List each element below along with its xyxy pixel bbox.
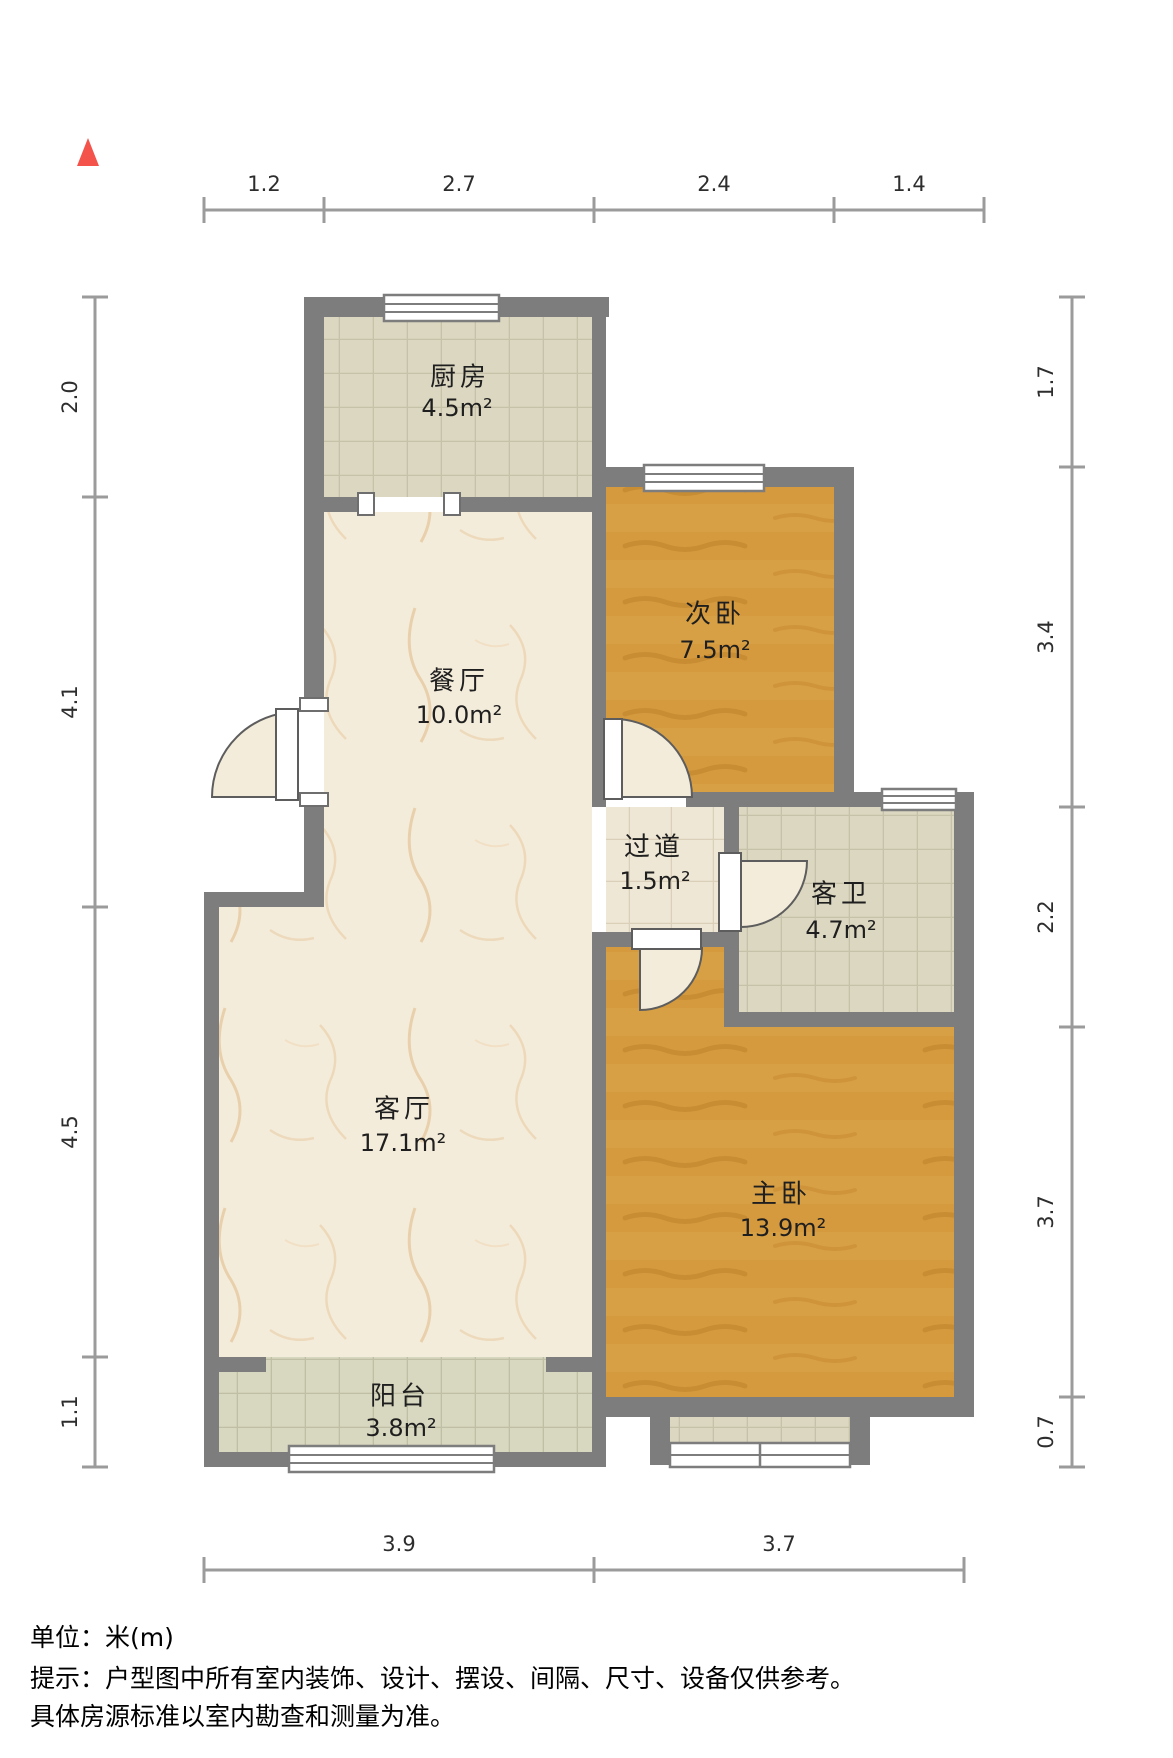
- footer-note-line1: 提示：户型图中所有室内装饰、设计、摆设、间隔、尺寸、设备仅供参考。: [30, 1659, 855, 1695]
- kitchen-area: 4.5m²: [421, 394, 492, 422]
- dining-room-area: 10.0m²: [416, 701, 502, 729]
- kitchen-opening-jamb-left: [358, 493, 374, 515]
- kitchen-window: [384, 295, 499, 321]
- wall-hallway-bottom-right: [699, 932, 724, 947]
- wall-balcony-divider-left: [219, 1357, 266, 1372]
- dim-left-1: 2.0: [58, 380, 82, 413]
- wall-guest-bathroom-west-upper: [724, 807, 739, 857]
- balcony-window: [289, 1446, 494, 1472]
- dim-top-2: 2.7: [442, 172, 475, 196]
- living-room-label: 客厅: [374, 1089, 434, 1126]
- dim-top-1: 1.2: [247, 172, 280, 196]
- dim-left-2: 4.1: [58, 685, 82, 718]
- guest-bathroom-label: 客卫: [811, 874, 871, 911]
- hallway-label: 过道: [624, 827, 684, 864]
- living-room-area: 17.1m²: [360, 1129, 446, 1157]
- dim-top-3: 2.4: [697, 172, 730, 196]
- bay-window-floor: [670, 1417, 850, 1445]
- second-bedroom-door-leaf: [604, 719, 622, 799]
- dim-right-5: 0.7: [1034, 1415, 1058, 1448]
- wall-kitchen-bottom-right: [452, 497, 606, 512]
- dim-right-1: 1.7: [1034, 365, 1058, 398]
- wall-guest-bathroom-bottom: [724, 1012, 954, 1027]
- dim-right-4: 3.7: [1034, 1195, 1058, 1228]
- wall-balcony-east: [592, 1357, 606, 1467]
- wall-master-bottom: [592, 1397, 974, 1417]
- second-bedroom-area: 7.5m²: [679, 636, 750, 664]
- wall-west-outer: [204, 892, 219, 1467]
- wall-entry-return: [204, 892, 324, 907]
- north-arrow-icon: [77, 138, 99, 166]
- entry-door-jamb-bottom: [300, 793, 328, 806]
- dim-left-4: 1.1: [58, 1395, 82, 1428]
- floor-plan-page: 厨房 4.5m² 次卧 7.5m² 餐厅 10.0m² 过道 1.5m² 客卫 …: [0, 0, 1173, 1758]
- wall-bay-window-left: [650, 1417, 670, 1465]
- wall-balcony-divider-right: [546, 1357, 592, 1372]
- wall-second-bedroom-bottom: [686, 792, 854, 807]
- second-bedroom-window: [644, 465, 764, 491]
- wall-master-west: [592, 932, 606, 1417]
- dining-room-label: 餐厅: [429, 661, 489, 698]
- guest-bathroom-window: [882, 789, 956, 810]
- guest-bathroom-door-leaf: [719, 853, 741, 931]
- hallway-area: 1.5m²: [619, 867, 690, 895]
- kitchen-label: 厨房: [430, 357, 490, 394]
- dim-right-2: 3.4: [1034, 620, 1058, 653]
- entry-door-jamb-top: [300, 698, 328, 711]
- wall-second-bedroom-east: [834, 467, 854, 807]
- bay-window: [670, 1443, 850, 1467]
- guest-bathroom-area: 4.7m²: [805, 916, 876, 944]
- master-bedroom-area: 13.9m²: [740, 1214, 826, 1242]
- second-bedroom-label: 次卧: [685, 594, 745, 631]
- entry-door-opening: [304, 704, 324, 800]
- dim-bottom-2: 3.7: [762, 1532, 795, 1556]
- master-bedroom-label: 主卧: [751, 1174, 811, 1211]
- footer-note-line2: 具体房源标准以室内勘查和测量为准。: [30, 1697, 455, 1733]
- dim-right-3: 2.2: [1034, 900, 1058, 933]
- master-bedroom-door-leaf: [632, 929, 701, 949]
- entry-door-leaf: [276, 709, 298, 800]
- dim-left-3: 4.5: [58, 1115, 82, 1148]
- wall-east-outer: [954, 792, 974, 1417]
- dim-top-4: 1.4: [892, 172, 925, 196]
- dim-bottom-1: 3.9: [382, 1532, 415, 1556]
- wall-kitchen-bottom-left: [304, 497, 366, 512]
- kitchen-opening: [366, 497, 452, 512]
- kitchen-opening-jamb-right: [444, 493, 460, 515]
- wall-bay-window-right: [850, 1417, 870, 1465]
- wall-west-below-door: [304, 797, 324, 907]
- footer-unit-label: 单位：米(m): [30, 1618, 174, 1654]
- balcony-threshold: [266, 1357, 546, 1372]
- balcony-label: 阳台: [370, 1376, 430, 1413]
- balcony-area: 3.8m²: [365, 1414, 436, 1442]
- floor-plan-drawing: [0, 0, 1173, 1758]
